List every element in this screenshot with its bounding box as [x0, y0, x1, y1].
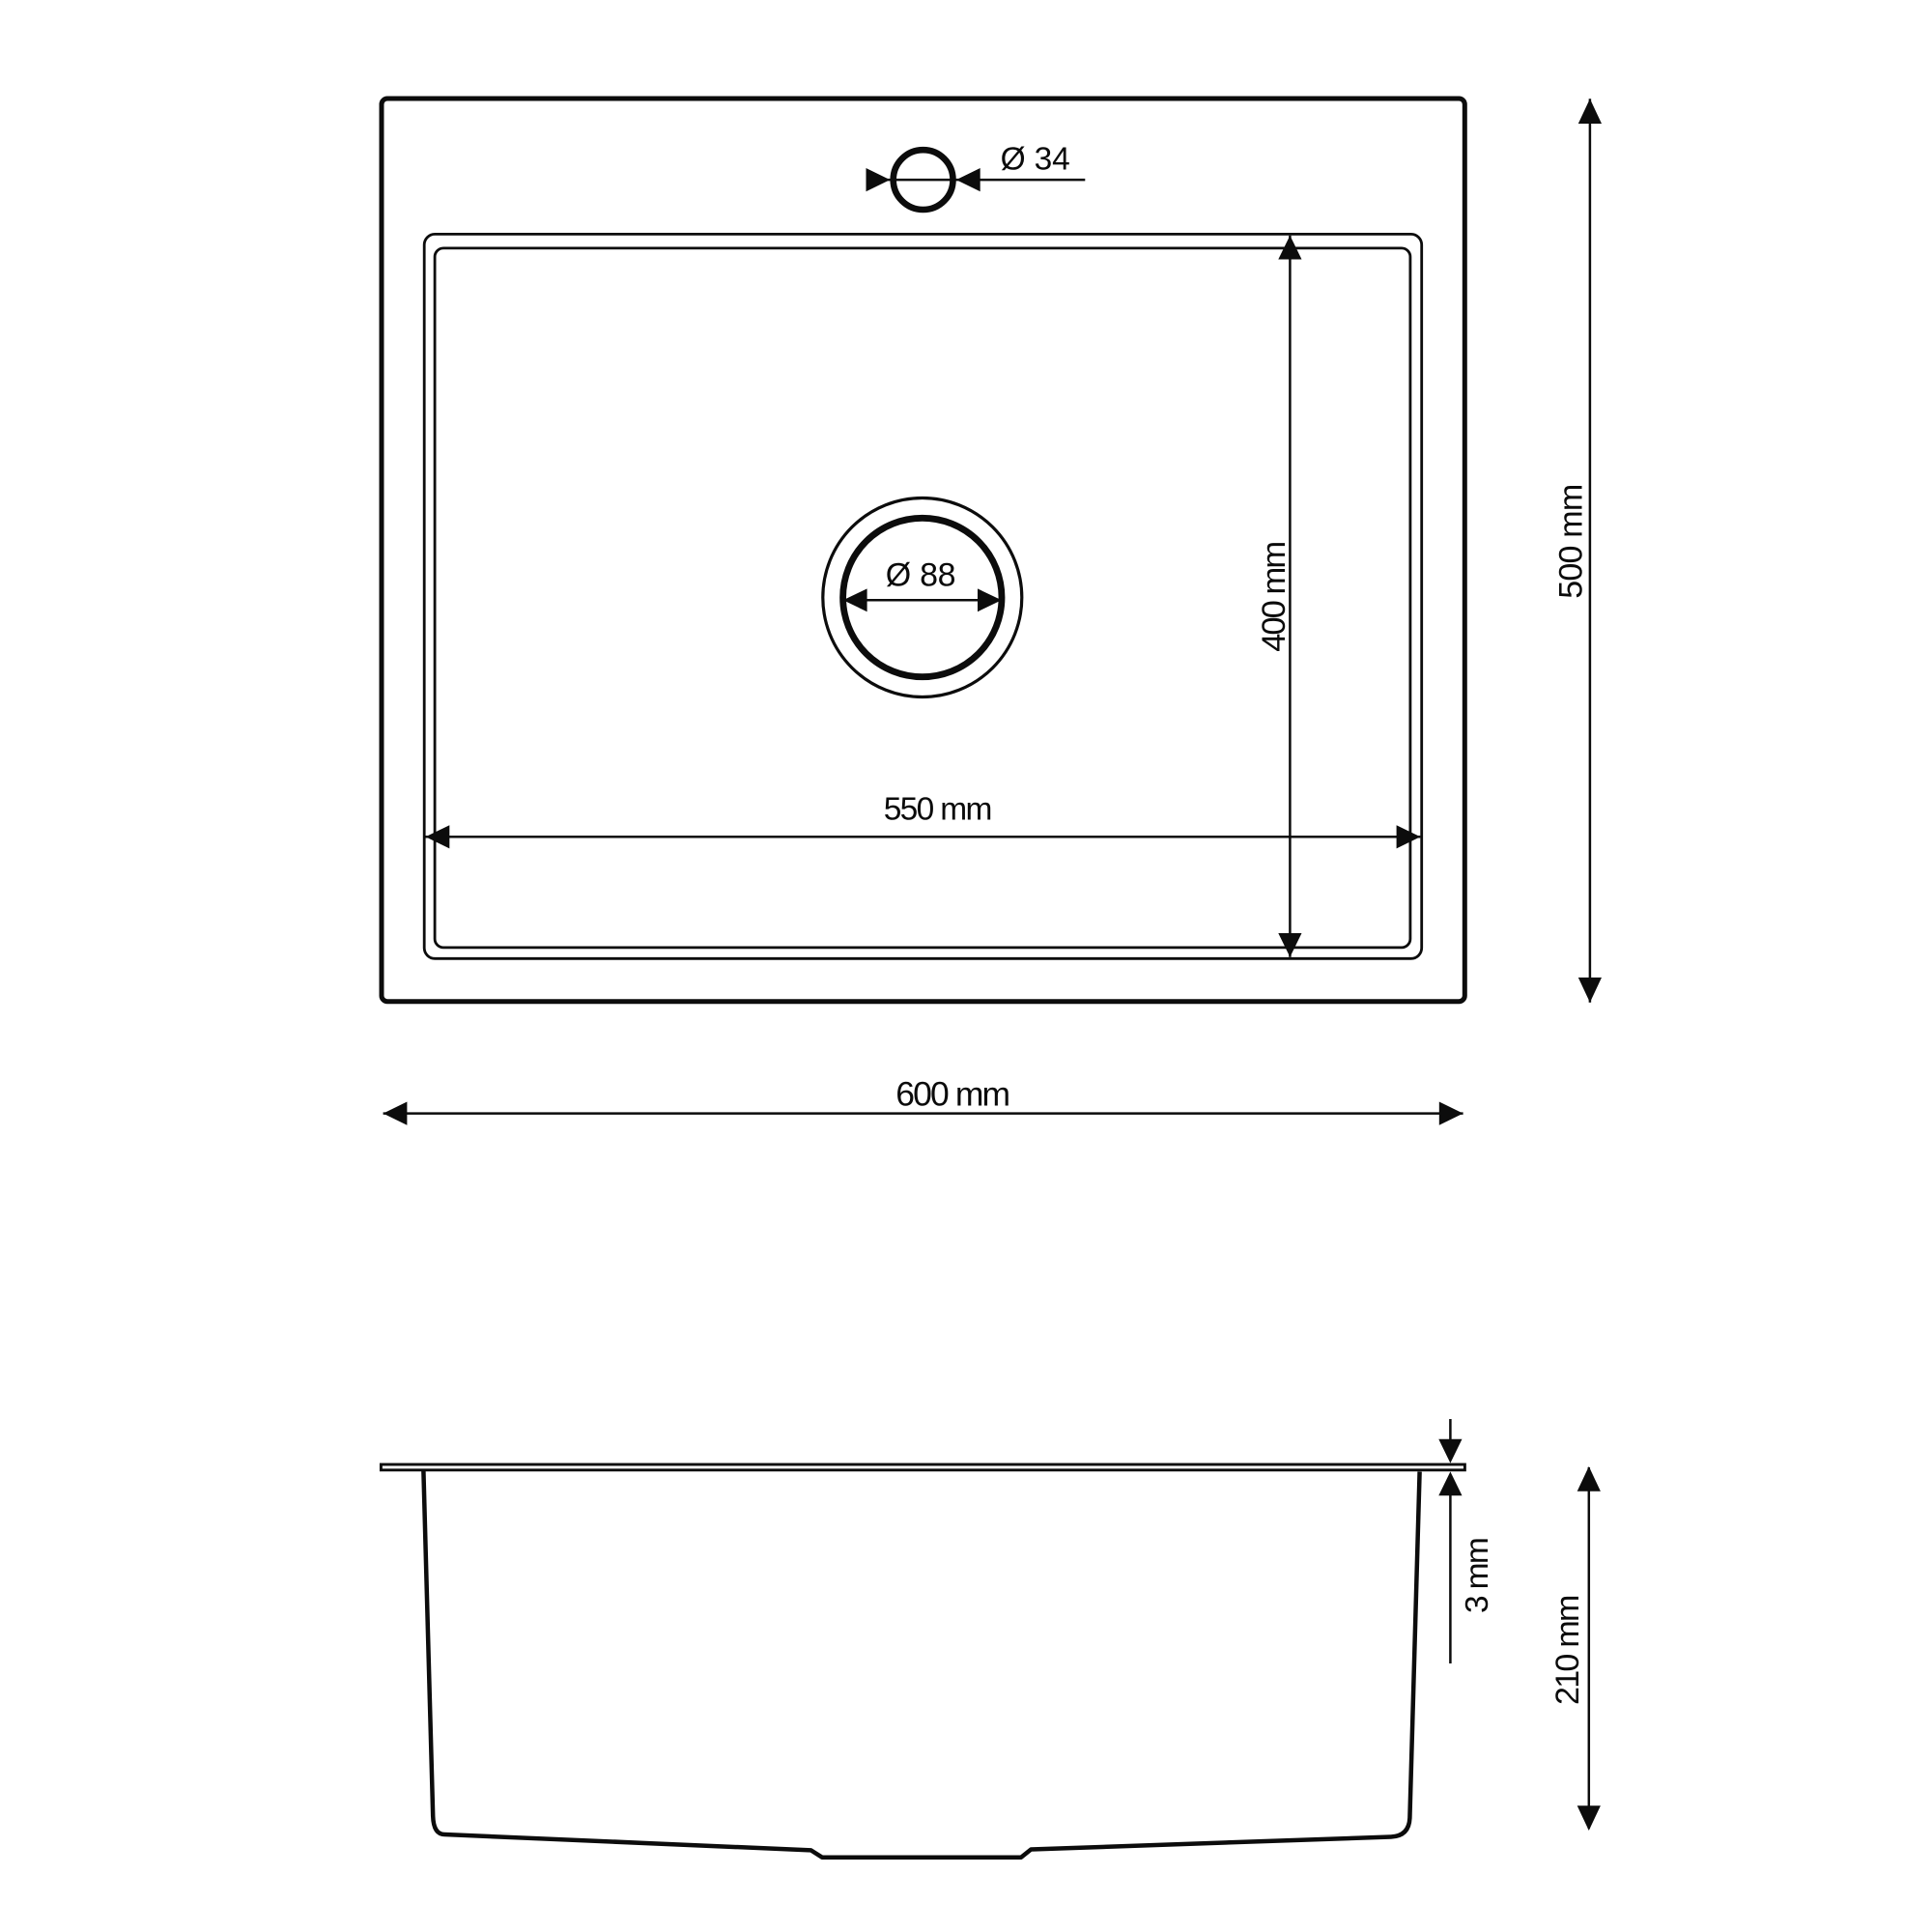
svg-text:Ø 88: Ø 88 [886, 557, 956, 594]
svg-text:550 mm: 550 mm [884, 792, 993, 828]
svg-text:210 mm: 210 mm [1549, 1595, 1586, 1705]
svg-text:Ø 34: Ø 34 [1001, 142, 1070, 178]
svg-text:3 mm: 3 mm [1460, 1537, 1495, 1613]
svg-text:400 mm: 400 mm [1256, 541, 1293, 652]
svg-text:600 mm: 600 mm [895, 1074, 1010, 1113]
svg-text:500 mm: 500 mm [1553, 484, 1590, 599]
